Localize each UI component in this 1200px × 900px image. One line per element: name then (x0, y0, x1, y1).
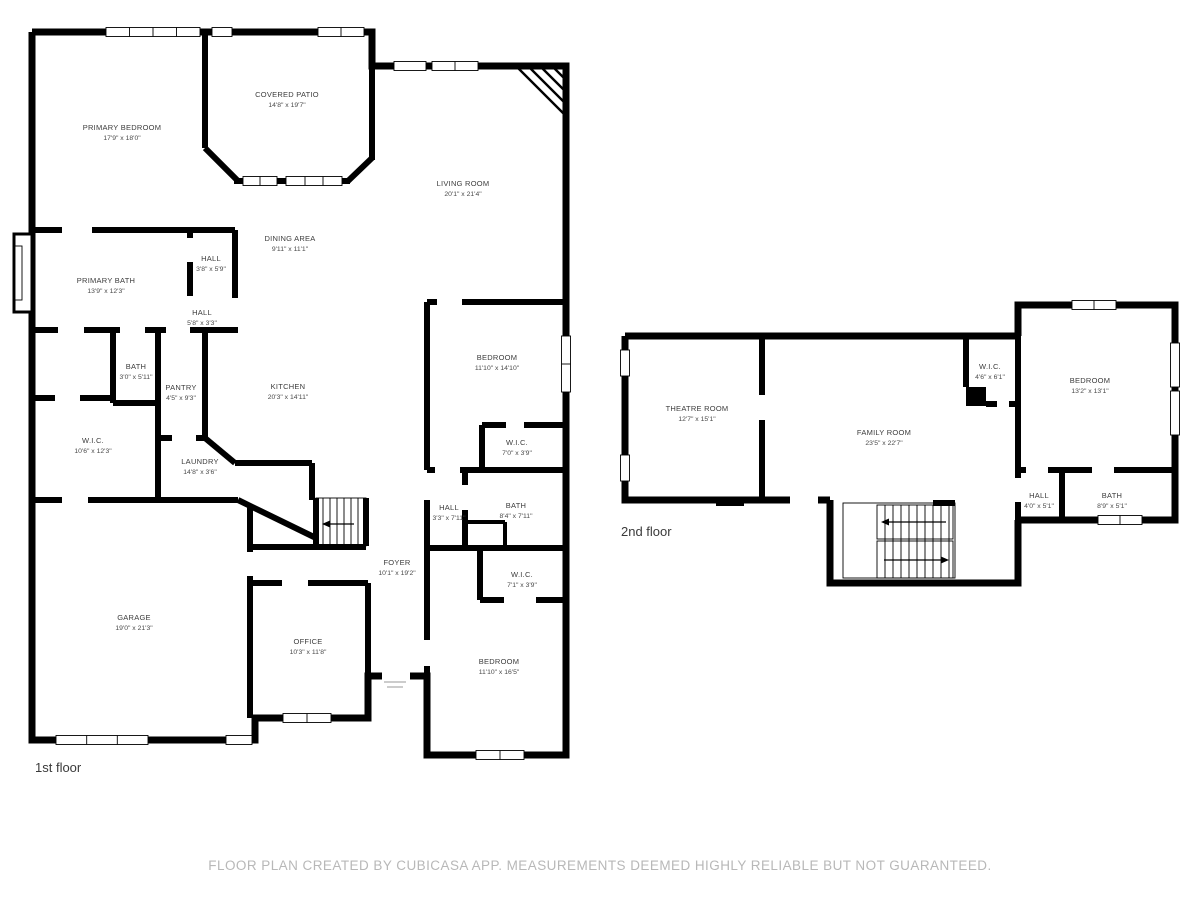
first-floor-plan: PRIMARY BEDROOM 17'9" x 18'0" COVERED PA… (14, 28, 571, 776)
room-dims-kitchen: 20'3" x 14'11" (268, 394, 309, 401)
room-label-covered-patio: COVERED PATIO (255, 90, 319, 99)
first-floor-label: 1st floor (35, 760, 82, 775)
corner-fireplace-hatch (516, 66, 566, 116)
room-label-pantry: PANTRY (165, 383, 196, 392)
room-label-family-room: FAMILY ROOM (857, 428, 911, 437)
room-label-theatre-room: THEATRE ROOM (666, 404, 729, 413)
room-label-primary-bath: PRIMARY BATH (77, 276, 135, 285)
second-floor-room-labels: THEATRE ROOM 12'7" x 15'1" FAMILY ROOM 2… (666, 362, 1128, 510)
room-dims-primary-bath: 13'9" x 12'3" (87, 288, 125, 295)
floor-plan-canvas: PRIMARY BEDROOM 17'9" x 18'0" COVERED PA… (0, 0, 1200, 900)
room-label-primary-bedroom: PRIMARY BEDROOM (83, 123, 162, 132)
room-label-wic-bottom: W.I.C. (511, 570, 533, 579)
room-dims-wic-bedroom: 7'0" x 3'9" (502, 450, 532, 457)
room-label-hall-upper: HALL (201, 254, 221, 263)
room-dims-bedroom-2f: 13'2" x 13'1" (1071, 388, 1109, 395)
room-label-wic-2f: W.I.C. (979, 362, 1001, 371)
chimney-block (966, 387, 986, 406)
room-label-kitchen: KITCHEN (271, 382, 306, 391)
room-dims-primary-bedroom: 17'9" x 18'0" (103, 135, 141, 142)
second-floor-label: 2nd floor (621, 524, 672, 539)
room-label-laundry: LAUNDRY (181, 457, 218, 466)
room-label-hall-lower: HALL (192, 308, 212, 317)
room-dims-bedroom-right: 11'10" x 14'10" (475, 365, 520, 372)
bath-bay-bumpout (14, 234, 32, 312)
room-label-bath-secondary: BATH (506, 501, 526, 510)
room-dims-family-room: 23'5" x 22'7" (865, 440, 903, 447)
room-label-garage: GARAGE (117, 613, 151, 622)
room-dims-bath-secondary: 8'4" x 7'11" (500, 513, 534, 520)
second-floor-plan: THEATRE ROOM 12'7" x 15'1" FAMILY ROOM 2… (621, 301, 1180, 584)
room-dims-bath-small: 3'0" x 5'11" (120, 374, 154, 381)
room-label-bedroom-2f: BEDROOM (1070, 376, 1111, 385)
room-dims-garage: 19'0" x 21'3" (115, 625, 153, 632)
room-dims-dining-area: 9'11" x 11'1" (272, 246, 309, 253)
room-dims-covered-patio: 14'8" x 19'7" (268, 102, 306, 109)
room-dims-wic-bottom: 7'1" x 3'9" (507, 582, 537, 589)
first-floor-staircase (316, 498, 366, 546)
room-label-bedroom-right: BEDROOM (477, 353, 518, 362)
room-label-office: OFFICE (294, 637, 323, 646)
room-dims-living-room: 20'1" x 21'4" (444, 191, 482, 198)
room-label-hall-bedrooms: HALL (439, 503, 459, 512)
room-dims-bedroom-bottom: 11'10" x 16'5" (479, 669, 520, 676)
room-dims-office: 10'3" x 11'8" (290, 649, 327, 656)
room-dims-wic-2f: 4'6" x 6'1" (975, 374, 1005, 381)
room-dims-hall-bedrooms: 3'3" x 7'11" (433, 515, 467, 522)
front-entry-steps (384, 682, 406, 687)
room-dims-laundry: 14'8" x 3'6" (183, 469, 217, 476)
room-label-hall-2f: HALL (1029, 491, 1049, 500)
room-label-bath-2f: BATH (1102, 491, 1122, 500)
room-dims-hall-upper: 3'8" x 5'9" (196, 266, 226, 273)
room-dims-bath-2f: 8'9" x 5'1" (1097, 503, 1127, 510)
room-label-living-room: LIVING ROOM (437, 179, 490, 188)
disclaimer-text: FLOOR PLAN CREATED BY CUBICASA APP. MEAS… (208, 858, 991, 873)
room-dims-hall-lower: 5'8" x 3'3" (187, 320, 217, 327)
room-label-foyer: FOYER (383, 558, 410, 567)
room-label-bath-small: BATH (126, 362, 146, 371)
second-floor-staircase (843, 503, 955, 578)
room-dims-foyer: 10'1" x 19'2" (378, 570, 416, 577)
room-dims-pantry: 4'5" x 9'3" (166, 395, 196, 402)
room-dims-wic-primary: 10'6" x 12'3" (74, 448, 112, 455)
room-label-wic-bedroom: W.I.C. (506, 438, 528, 447)
room-label-wic-primary: W.I.C. (82, 436, 104, 445)
floor-plan-page: { "footer": { "disclaimer": "FLOOR PLAN … (0, 0, 1200, 900)
room-dims-theatre-room: 12'7" x 15'1" (678, 416, 716, 423)
theatre-wall-block (716, 497, 744, 506)
room-label-dining-area: DINING AREA (264, 234, 315, 243)
room-label-bedroom-bottom: BEDROOM (479, 657, 520, 666)
room-dims-hall-2f: 4'0" x 5'1" (1024, 503, 1054, 510)
